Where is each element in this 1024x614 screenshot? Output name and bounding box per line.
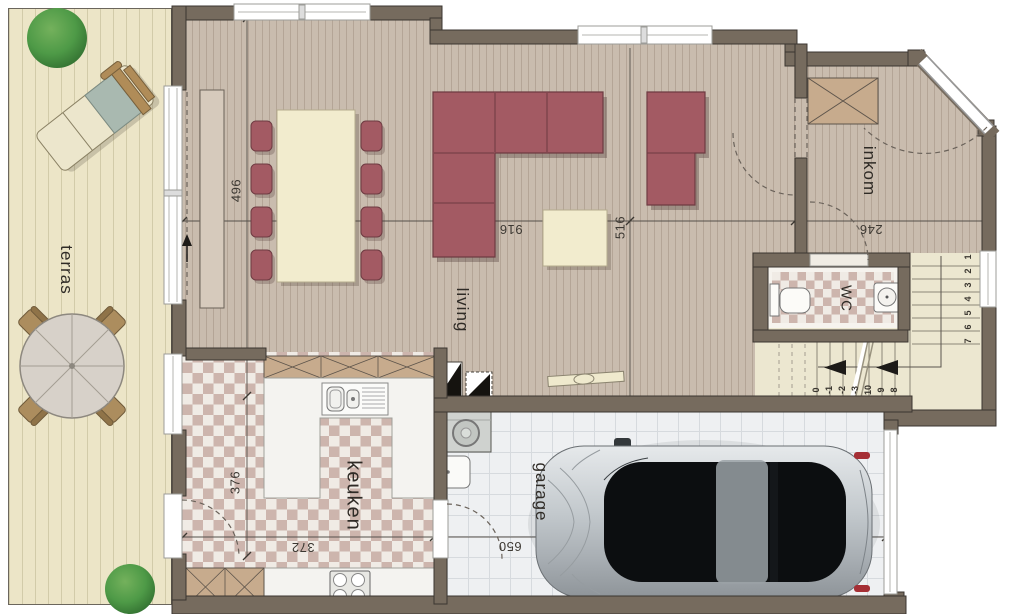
north-arrow <box>182 234 192 262</box>
sideboard <box>200 90 224 308</box>
car <box>528 438 880 608</box>
sofa-small <box>647 92 709 210</box>
floor-plan: terras living keuken garage WC inkom 496… <box>0 0 1024 614</box>
coffee-table <box>543 210 611 270</box>
stairs-detail <box>779 253 980 402</box>
terrace-round-table <box>17 305 127 427</box>
kitchen-sink <box>322 383 388 415</box>
wc-fixtures <box>770 283 901 316</box>
hall-shelf <box>548 371 625 386</box>
kitchen-upper-cabinets <box>264 356 436 378</box>
dining-set <box>251 110 385 286</box>
lounge-chair <box>30 55 162 176</box>
washing-machine <box>441 412 491 452</box>
entry-closet <box>808 78 878 124</box>
plan-graphics <box>0 0 1024 614</box>
